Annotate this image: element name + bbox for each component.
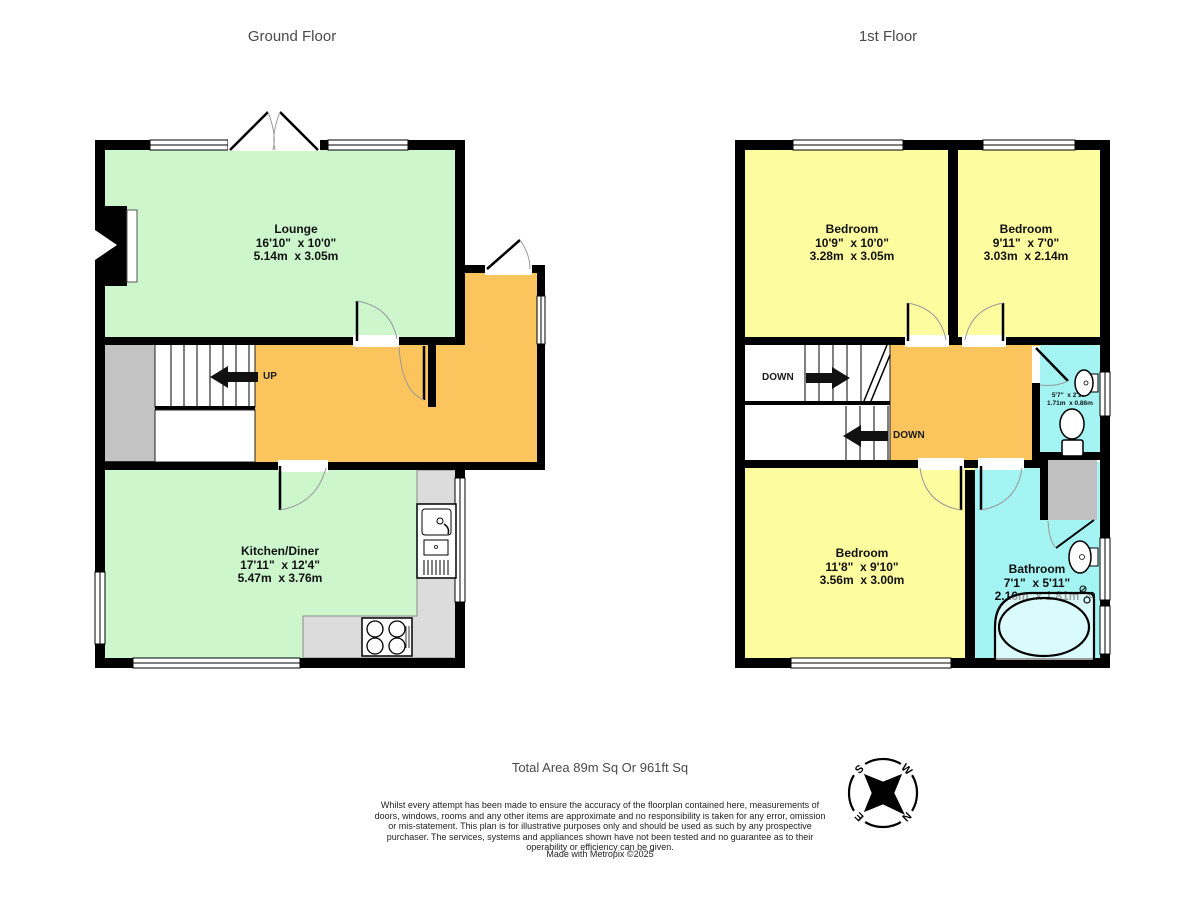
fixtures-layer <box>0 0 1200 901</box>
kitchen-sink-icon <box>417 504 456 578</box>
hob-icon <box>362 618 412 656</box>
wc-toilet-icon <box>1060 409 1084 456</box>
floorplan-page: N E S W Ground Floor 1st Floor Lounge 16… <box>0 0 1200 901</box>
bathroom-basin-icon <box>1069 541 1098 573</box>
wc-basin-icon <box>1075 370 1098 396</box>
bath-icon <box>995 593 1094 660</box>
